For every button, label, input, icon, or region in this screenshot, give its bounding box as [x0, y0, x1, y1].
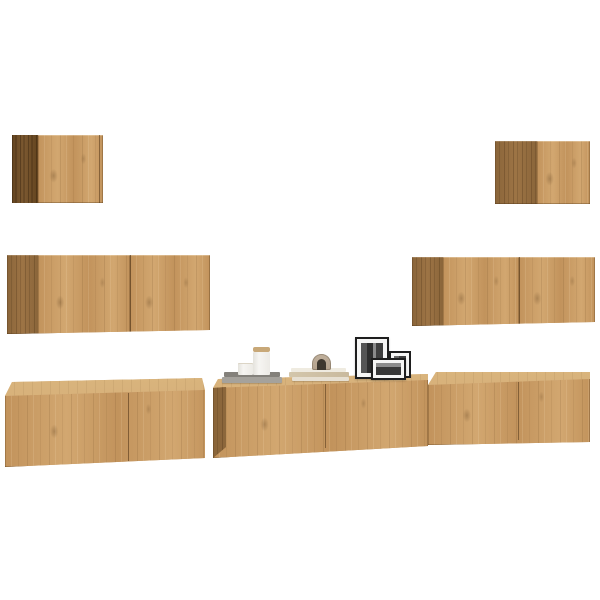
arch-ornament — [312, 354, 331, 370]
cabinet-door-left — [443, 257, 519, 326]
wall-cabinet-mid-right — [412, 257, 595, 326]
door-seam — [99, 135, 100, 203]
tray — [222, 377, 282, 383]
tv-cabinet-bottom-left — [5, 378, 210, 467]
candle-tall — [253, 352, 270, 375]
cabinet-door-left — [38, 255, 130, 334]
cabinet-side-panel — [412, 257, 443, 326]
cabinet-door-right — [130, 255, 210, 334]
arch-opening — [317, 359, 326, 370]
frame-medium — [371, 358, 406, 380]
cabinet-door-right — [519, 257, 595, 326]
wall-cabinet-mid-left — [7, 255, 210, 334]
cabinet-door — [38, 135, 103, 203]
door-seam — [325, 384, 326, 448]
cabinet-door — [537, 141, 590, 204]
candle-short — [238, 363, 253, 375]
book-bottom — [292, 377, 349, 381]
cabinet-side-panel — [495, 141, 537, 204]
door-seam — [130, 255, 131, 334]
tv-cabinet-bottom-center — [213, 374, 428, 458]
cabinet-side-panel — [7, 255, 38, 334]
door-seam — [518, 382, 519, 440]
frame-medium-photo — [376, 363, 401, 375]
wall-cabinet-top-right — [495, 141, 590, 204]
cabinet-side-panel — [12, 135, 38, 203]
tv-cabinet-bottom-right — [428, 371, 590, 445]
door-seam — [128, 393, 129, 461]
product-image — [0, 0, 600, 600]
wall-cabinet-top-left — [12, 135, 103, 203]
door-seam — [519, 257, 520, 326]
